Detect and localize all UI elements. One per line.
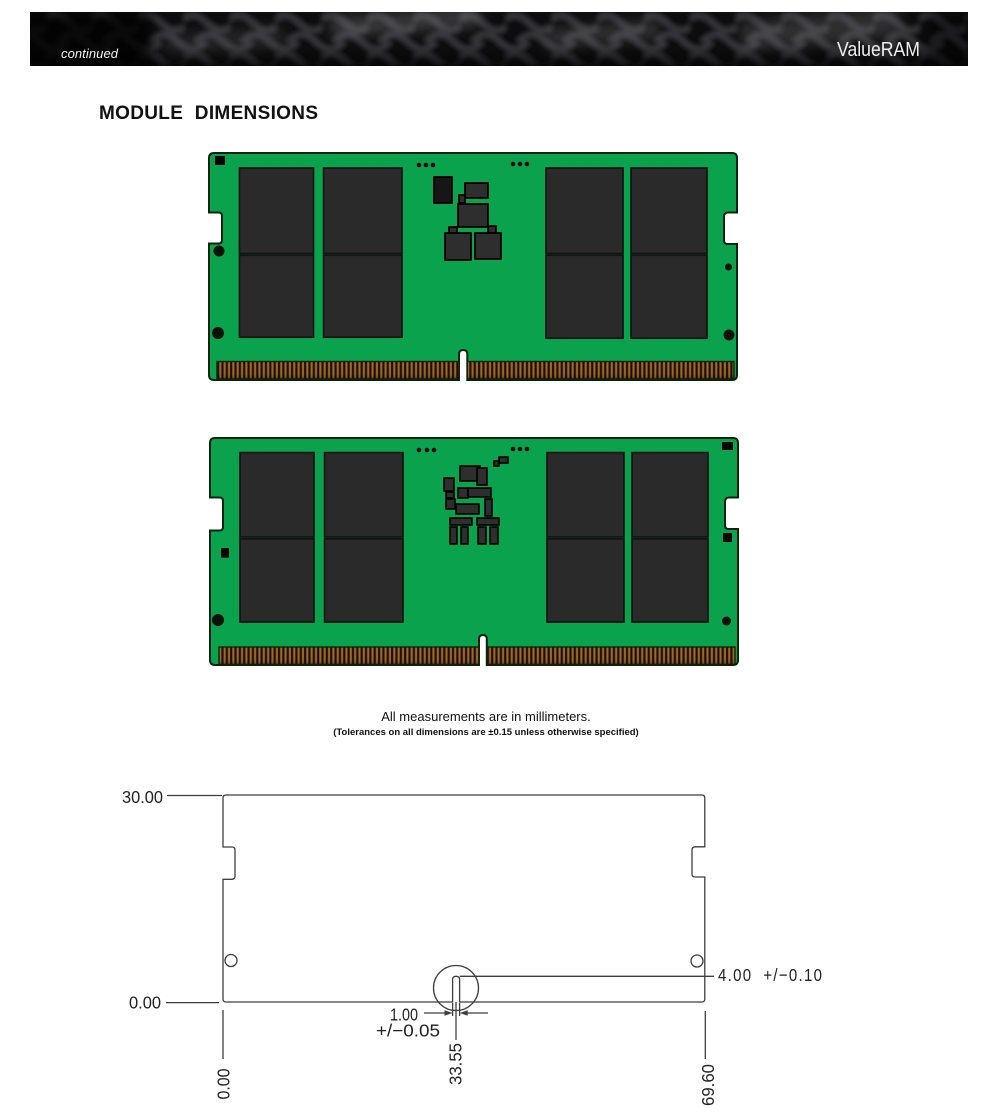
svg-text:(Tolerances on all dimensions: (Tolerances on all dimensions are ±0.15 …	[333, 727, 638, 738]
svg-text:All measurements are in millim: All measurements are in millimeters.	[381, 709, 591, 724]
svg-text:MODULE DIMENSIONS: MODULE DIMENSIONS	[99, 103, 318, 124]
svg-text:continued: continued	[61, 46, 119, 61]
svg-text:69.60: 69.60	[698, 1064, 719, 1106]
svg-text:4.00 +/−0.10: 4.00 +/−0.10	[718, 965, 822, 986]
svg-text:33.55: 33.55	[445, 1043, 466, 1085]
svg-text:+/−0.05: +/−0.05	[376, 1020, 440, 1041]
svg-text:ValueRAM: ValueRAM	[837, 38, 920, 61]
svg-text:0.00: 0.00	[213, 1069, 234, 1100]
svg-text:0.00: 0.00	[129, 992, 161, 1013]
svg-text:30.00: 30.00	[122, 787, 163, 808]
